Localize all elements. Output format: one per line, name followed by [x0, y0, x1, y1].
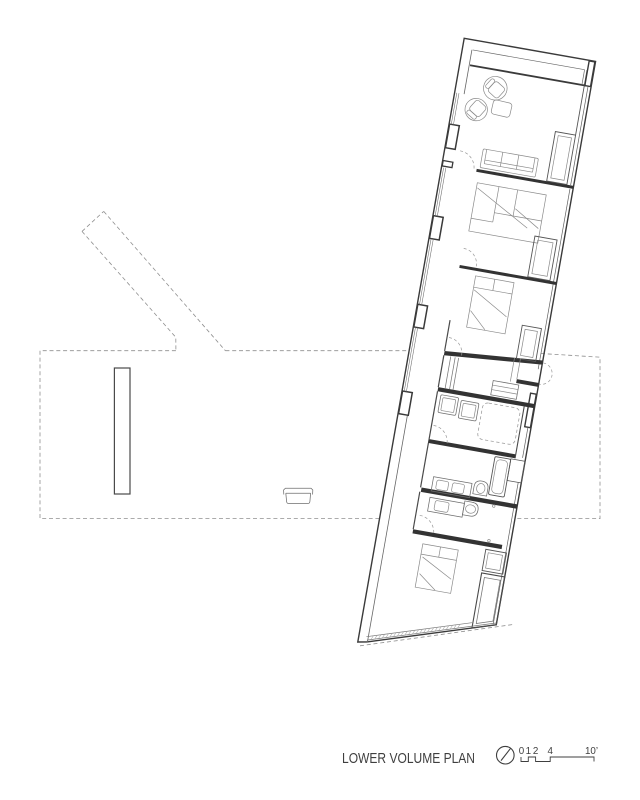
svg-text:4: 4	[547, 746, 553, 757]
svg-text:0: 0	[519, 746, 525, 757]
svg-text:1: 1	[526, 746, 531, 757]
svg-text:10’: 10’	[585, 746, 598, 757]
svg-text:LOWER VOLUME PLAN: LOWER VOLUME PLAN	[342, 751, 475, 767]
svg-text:2: 2	[533, 746, 538, 757]
